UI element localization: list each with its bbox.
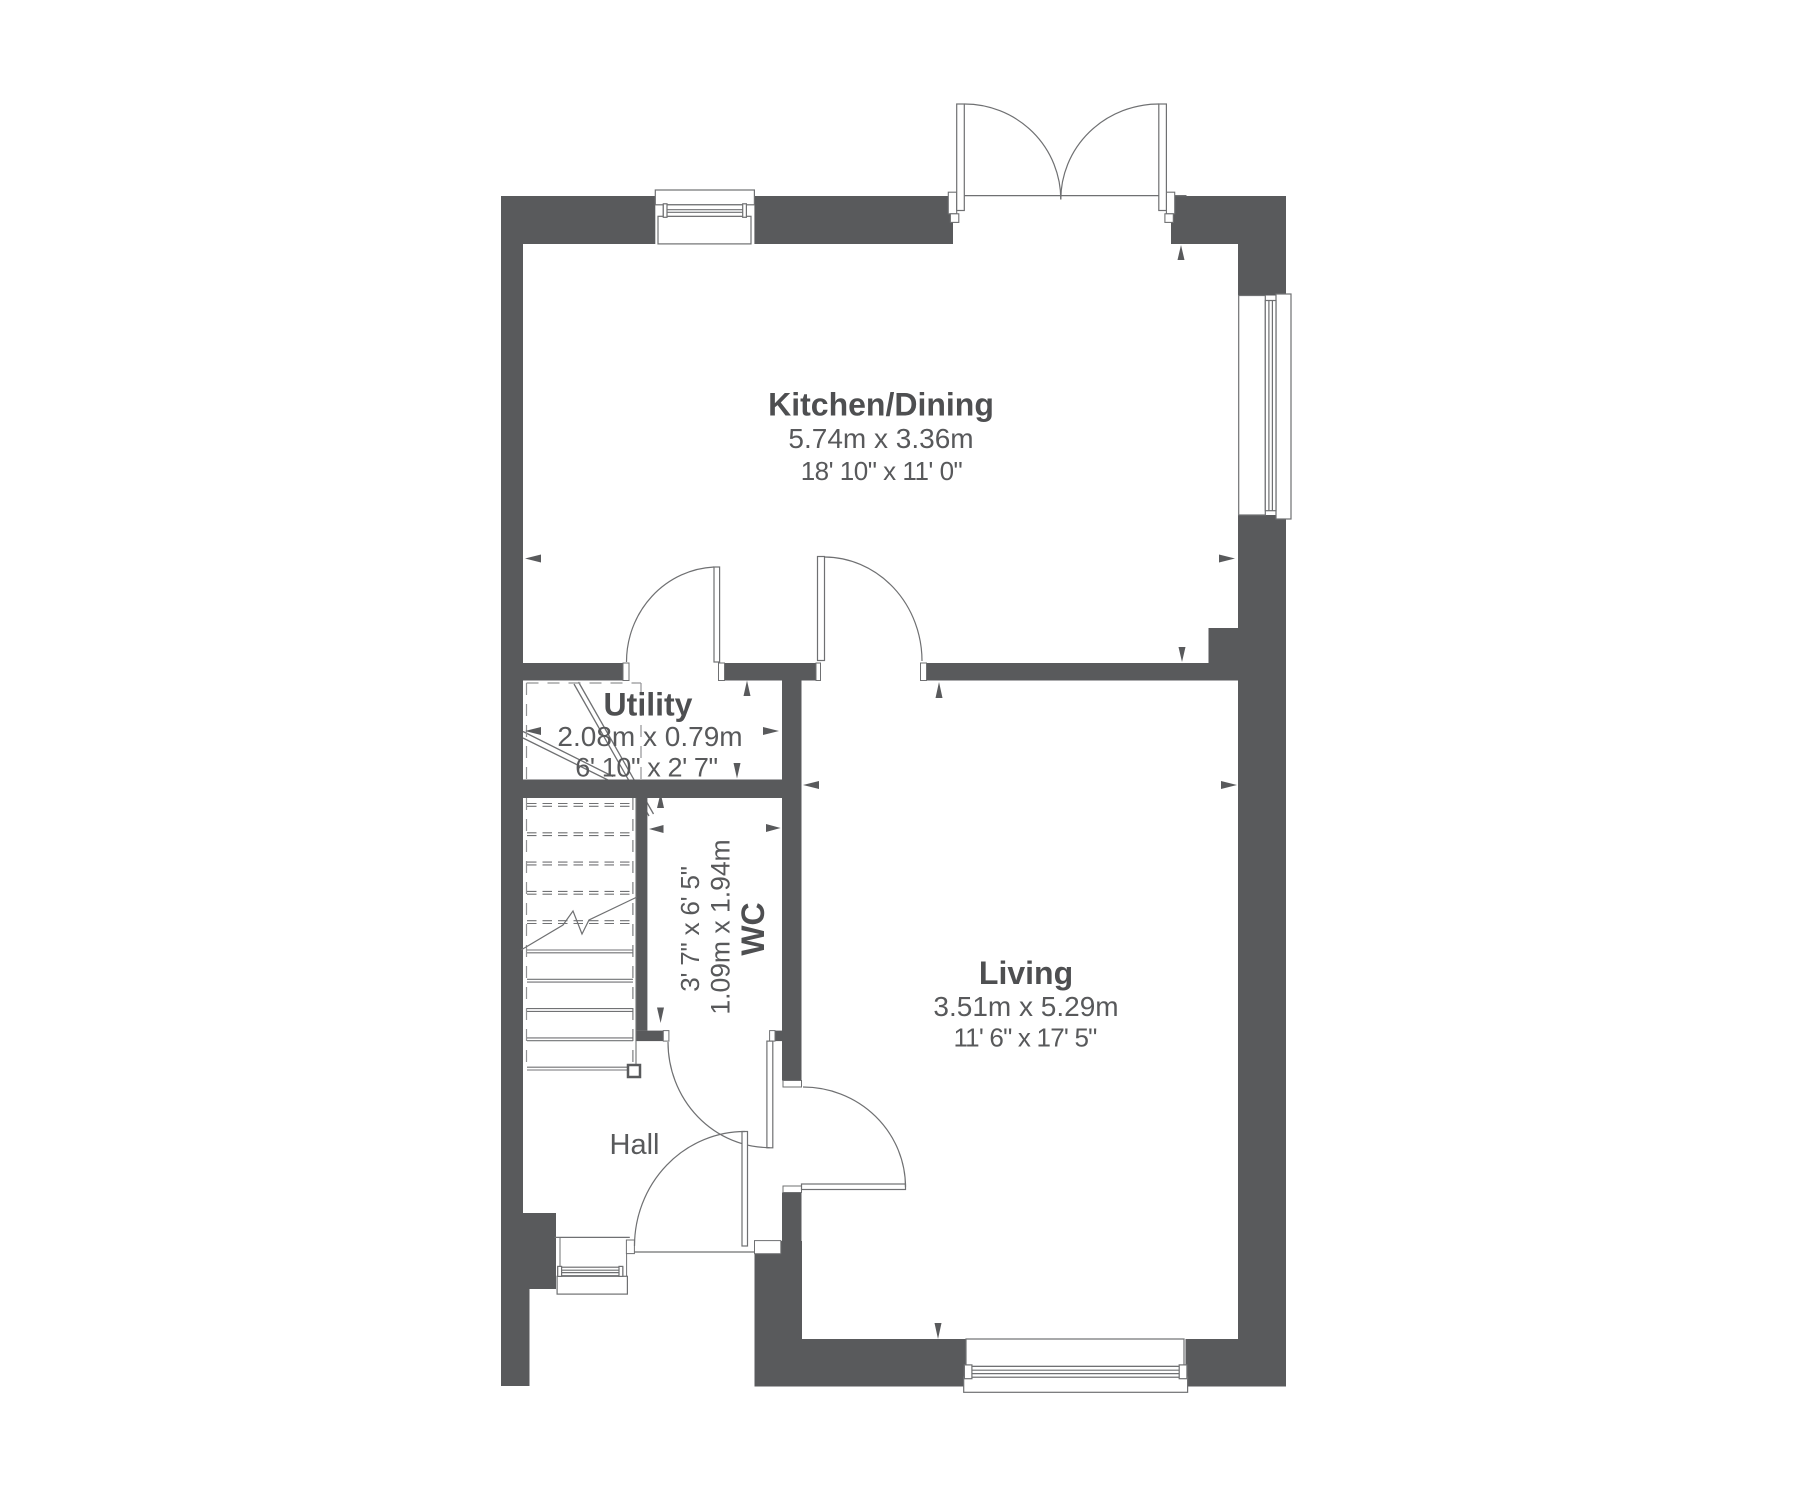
svg-text:6' 10" x 2' 7": 6' 10" x 2' 7" [575, 752, 717, 782]
svg-text:Hall: Hall [610, 1129, 660, 1161]
svg-text:1.09m x 1.94m: 1.09m x 1.94m [706, 839, 736, 1014]
svg-text:Utility: Utility [604, 687, 693, 723]
svg-text:3.51m x 5.29m: 3.51m x 5.29m [933, 991, 1118, 1022]
svg-text:2.08m x 0.79m: 2.08m x 0.79m [557, 721, 742, 752]
svg-text:11' 6" x 17' 5": 11' 6" x 17' 5" [953, 1023, 1097, 1053]
svg-text:WC: WC [735, 902, 771, 955]
svg-text:5.74m x 3.36m: 5.74m x 3.36m [788, 423, 973, 454]
svg-text:18' 10" x 11' 0": 18' 10" x 11' 0" [801, 456, 963, 486]
svg-text:3' 7" x 6' 5": 3' 7" x 6' 5" [675, 866, 705, 992]
svg-text:Kitchen/Dining: Kitchen/Dining [768, 387, 994, 423]
svg-text:Living: Living [979, 955, 1073, 991]
